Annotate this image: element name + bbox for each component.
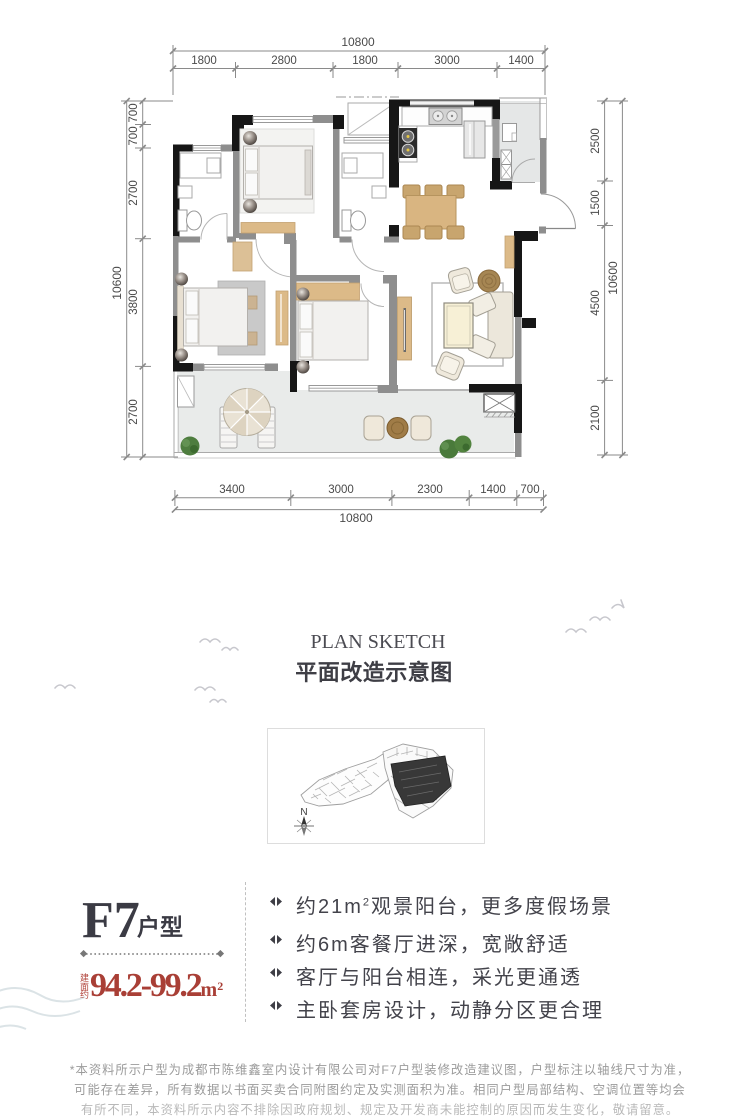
svg-text:4500: 4500 [590,290,602,316]
svg-text:3800: 3800 [128,289,140,315]
svg-text:700: 700 [128,126,140,145]
svg-text:2500: 2500 [590,128,602,154]
svg-text:2700: 2700 [128,399,140,425]
svg-text:1400: 1400 [480,484,506,496]
svg-text:3000: 3000 [328,484,354,496]
svg-text:2800: 2800 [271,55,297,67]
svg-text:10800: 10800 [341,35,375,49]
svg-text:2700: 2700 [128,180,140,206]
svg-text:10600: 10600 [606,261,620,295]
svg-text:2100: 2100 [590,405,602,431]
svg-text:1400: 1400 [508,55,534,67]
svg-text:10600: 10600 [110,266,124,300]
svg-text:3400: 3400 [219,484,245,496]
svg-text:1500: 1500 [590,190,602,216]
svg-text:3000: 3000 [434,55,460,67]
svg-text:1800: 1800 [352,55,378,67]
svg-text:2300: 2300 [417,484,443,496]
svg-text:1800: 1800 [191,55,217,67]
svg-text:700: 700 [128,103,140,122]
svg-text:700: 700 [520,484,539,496]
svg-text:10800: 10800 [339,511,373,525]
